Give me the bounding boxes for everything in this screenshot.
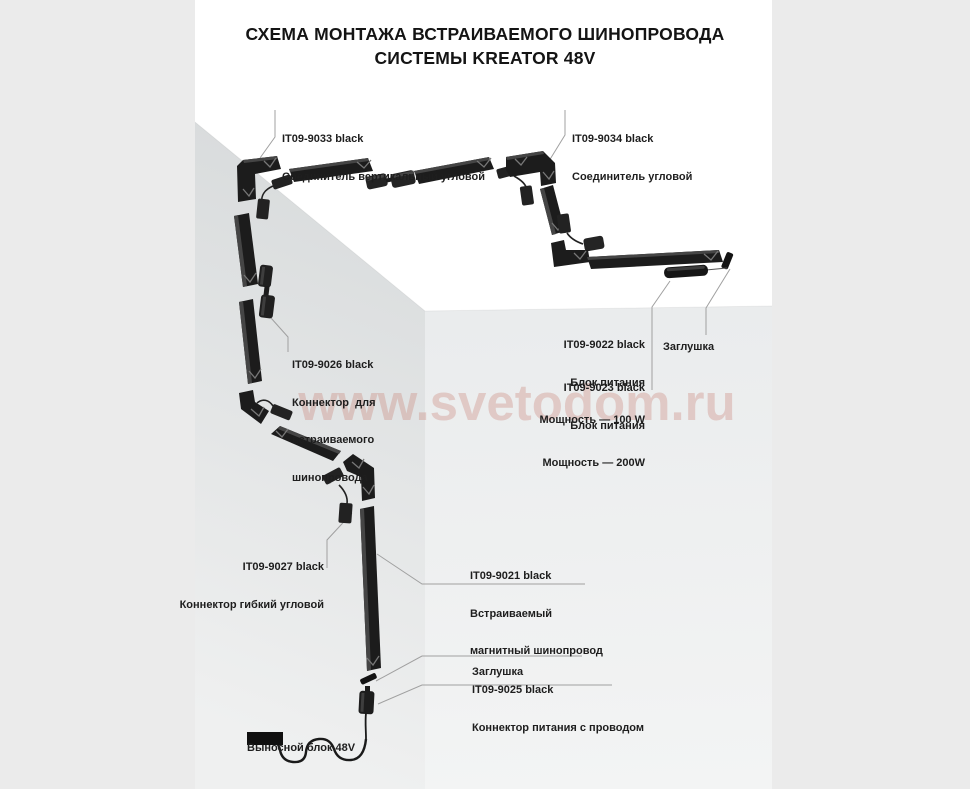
label-desc: Коннектор для — [292, 397, 376, 410]
label-desc: Коннектор гибкий угловой — [180, 599, 324, 612]
label-corner-connector: IT09-9034 black Соединитель угловой — [572, 108, 692, 208]
label-code: IT09-9022 black — [539, 339, 645, 352]
label-recessed-connector: IT09-9026 black Коннектор для встраиваем… — [292, 334, 376, 509]
title-line-2: СИСТЕМЫ KREATOR 48V — [195, 46, 775, 70]
label-desc: Соединитель угловой — [572, 171, 692, 184]
label-desc: встраиваемого — [292, 434, 376, 447]
title-line-1: СХЕМА МОНТАЖА ВСТРАИВАЕМОГО ШИНОПРОВОДА — [195, 22, 775, 46]
label-code: IT09-9033 black — [282, 133, 485, 146]
diagram-page: www.svetodom.ru — [0, 0, 970, 789]
page-title: СХЕМА МОНТАЖА ВСТРАИВАЕМОГО ШИНОПРОВОДА … — [195, 22, 775, 70]
label-flexible-connector: IT09-9027 black Коннектор гибкий угловой — [180, 536, 324, 636]
label-code: IT09-9027 black — [180, 561, 324, 574]
label-remote-block: Выносной блок 48V — [247, 717, 355, 780]
label-desc: Соединитель вертикальный угловой — [282, 171, 485, 184]
label-desc: Коннектор питания с проводом — [472, 722, 644, 735]
label-text: Заглушка — [663, 341, 714, 354]
label-desc: Встраиваемый — [470, 608, 603, 621]
label-code: IT09-9023 black — [543, 382, 646, 395]
label-end-cap-right: Заглушка — [663, 316, 714, 379]
label-code: IT09-9034 black — [572, 133, 692, 146]
label-code: IT09-9026 black — [292, 359, 376, 372]
label-code: IT09-9025 black — [472, 684, 644, 697]
label-psu-200: IT09-9023 black Блок питания Мощность — … — [543, 357, 646, 495]
label-code: IT09-9021 black — [470, 570, 603, 583]
label-power-connector: IT09-9025 black Коннектор питания с пров… — [472, 659, 644, 759]
label-connector-vertical-corner: IT09-9033 black Соединитель вертикальный… — [282, 108, 485, 208]
label-desc: шинопровода — [292, 472, 376, 485]
label-desc: Блок питания — [543, 420, 646, 433]
label-text: Выносной блок 48V — [247, 742, 355, 755]
label-desc: Мощность — 200W — [543, 457, 646, 470]
